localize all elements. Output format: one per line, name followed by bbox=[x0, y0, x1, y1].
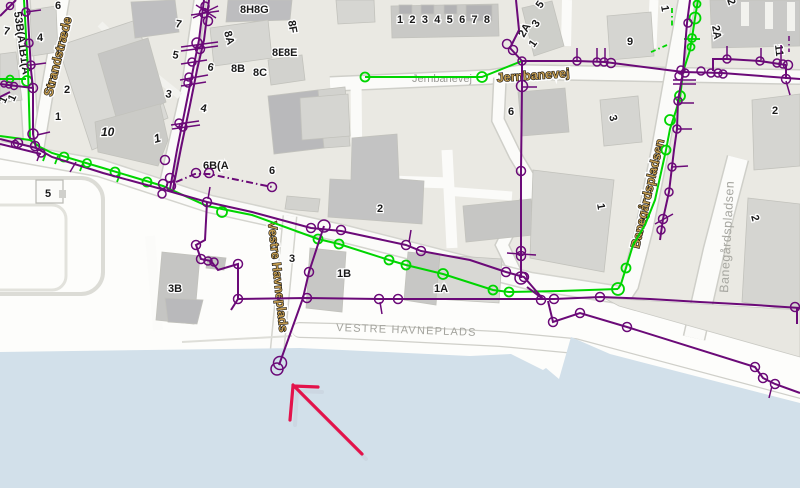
svg-text:4: 4 bbox=[37, 32, 44, 44]
svg-text:2A: 2A bbox=[709, 24, 723, 40]
svg-text:8E: 8E bbox=[284, 47, 297, 59]
svg-text:1A: 1A bbox=[434, 283, 448, 295]
svg-text:2: 2 bbox=[377, 203, 383, 215]
svg-text:8F: 8F bbox=[285, 19, 299, 34]
svg-text:8C: 8C bbox=[253, 67, 267, 79]
svg-text:2: 2 bbox=[772, 105, 778, 117]
svg-text:6: 6 bbox=[269, 165, 275, 177]
svg-text:9: 9 bbox=[627, 36, 633, 48]
svg-text:3: 3 bbox=[289, 253, 295, 265]
svg-text:10: 10 bbox=[101, 125, 115, 139]
svg-text:8B: 8B bbox=[231, 63, 245, 75]
svg-text:6B(A: 6B(A bbox=[203, 160, 229, 172]
svg-text:1: 1 bbox=[55, 111, 61, 123]
svg-text:3B: 3B bbox=[168, 283, 182, 295]
svg-text:12345678: 12345678 bbox=[397, 14, 496, 26]
svg-text:6: 6 bbox=[508, 106, 514, 118]
svg-text:Jernbanevej: Jernbanevej bbox=[412, 73, 472, 85]
svg-text:2: 2 bbox=[64, 84, 70, 96]
svg-text:5: 5 bbox=[45, 188, 51, 200]
svg-text:6: 6 bbox=[55, 0, 61, 12]
svg-text:8H8G: 8H8G bbox=[240, 4, 269, 16]
svg-text:1B: 1B bbox=[337, 268, 351, 280]
svg-text:11: 11 bbox=[772, 44, 785, 57]
